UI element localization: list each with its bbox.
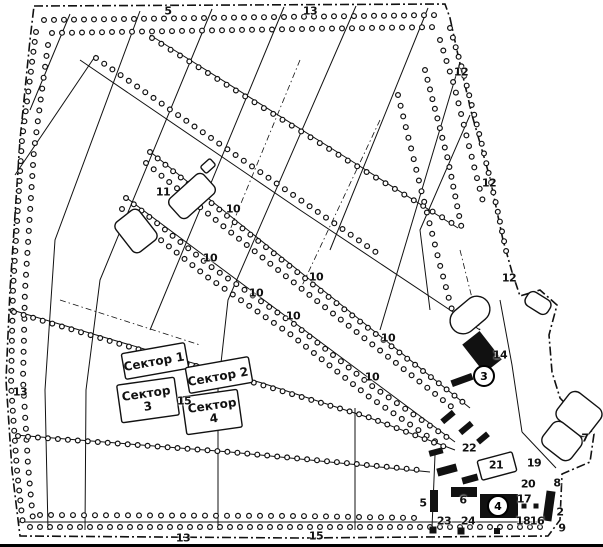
tree-icon [338, 406, 343, 411]
map-number-label-8: 8 [553, 478, 560, 489]
tree-icon [427, 221, 432, 226]
plot-divider [230, 60, 300, 230]
tree-icon [467, 144, 472, 149]
tree-icon [394, 426, 399, 431]
tree-icon [208, 525, 213, 530]
tree-icon [396, 93, 401, 98]
tree-icon [271, 112, 276, 117]
map-number-label-10: 10 [203, 253, 217, 264]
tree-row [50, 25, 435, 36]
tree-icon [401, 515, 406, 520]
tree-icon [260, 27, 265, 32]
tree-icon [30, 59, 35, 64]
tree-icon [34, 30, 39, 35]
tree-icon [438, 264, 443, 269]
tree-icon [364, 463, 369, 468]
tree-icon [22, 338, 27, 343]
tree-icon [66, 437, 71, 442]
tree-icon [419, 189, 424, 194]
tree-icon [30, 514, 35, 519]
tree-icon [217, 141, 222, 146]
map-number-label-10: 10 [365, 372, 379, 383]
tree-icon [12, 310, 17, 315]
tree-icon [430, 231, 435, 236]
tree-icon [31, 49, 36, 54]
tree-icon [158, 525, 163, 530]
tree-icon [346, 365, 351, 370]
map-number-label-12: 12 [454, 67, 468, 78]
tree-icon [117, 341, 122, 346]
tree-icon [383, 181, 388, 186]
tree-icon [160, 29, 165, 34]
tree-icon [453, 194, 458, 199]
tree-icon [94, 56, 99, 61]
tree-icon [374, 175, 379, 180]
tree-icon [343, 376, 348, 381]
tree-icon [163, 162, 168, 167]
map-number-label-17: 17 [517, 494, 531, 505]
tree-icon [206, 211, 211, 216]
tree-icon [194, 252, 199, 257]
tree-icon [307, 334, 312, 339]
tree-icon [444, 387, 449, 392]
tree-icon [452, 393, 457, 398]
tree-icon [130, 29, 135, 34]
tree-icon [192, 124, 197, 129]
tree-icon [280, 389, 285, 394]
tree-icon [229, 230, 234, 235]
tree-icon [433, 392, 438, 397]
tree-icon [234, 282, 239, 287]
tree-icon [383, 405, 388, 410]
tree-icon [230, 28, 235, 33]
tree-icon [375, 400, 380, 405]
tree-icon [278, 525, 283, 530]
tree-icon [313, 514, 318, 519]
tree-icon [319, 400, 324, 405]
tree-icon [28, 207, 33, 212]
tree-icon [362, 14, 367, 19]
tree-icon [338, 317, 343, 322]
tree-icon [26, 434, 31, 439]
tree-icon [120, 30, 125, 35]
tree-icon [203, 513, 208, 518]
tree-icon [181, 513, 186, 518]
tree-icon [264, 245, 269, 250]
map-number-label-12: 12 [482, 178, 496, 189]
map-number-label-18: 18 [516, 516, 530, 527]
tree-icon [30, 174, 35, 179]
tree-icon [469, 154, 474, 159]
tree-icon [38, 97, 43, 102]
tree-icon [453, 45, 458, 50]
tree-icon [444, 285, 449, 290]
tree-icon [410, 25, 415, 30]
tree-icon [331, 353, 336, 358]
tree-icon [128, 525, 133, 530]
tree-icon [386, 354, 391, 359]
tree-icon [346, 323, 351, 328]
tree-icon [25, 459, 30, 464]
tree-icon [444, 435, 449, 440]
tree-icon [315, 210, 320, 215]
tree-icon [285, 455, 290, 460]
tree-icon [209, 136, 214, 141]
tree-icon [115, 513, 120, 518]
tree-icon [317, 141, 322, 146]
tree-icon [225, 513, 230, 518]
tree-icon [38, 525, 43, 530]
tree-icon [239, 298, 244, 303]
tree-row [438, 38, 485, 202]
tree-icon [272, 15, 277, 20]
tree-icon [284, 274, 289, 279]
tree-icon [110, 67, 115, 72]
tree-icon [18, 169, 23, 174]
tree-icon [422, 13, 427, 18]
tree-icon [289, 123, 294, 128]
tree-icon [115, 441, 120, 446]
tree-icon [469, 103, 474, 108]
map-number-label-16: 16 [530, 516, 544, 527]
street [500, 300, 522, 432]
tree-icon [242, 15, 247, 20]
tree-icon [484, 161, 489, 166]
tree-icon [334, 301, 339, 306]
tree-icon [10, 298, 15, 303]
tree-icon [49, 513, 54, 518]
tree-icon [25, 448, 30, 453]
tree-icon [258, 170, 263, 175]
tree-icon [259, 299, 264, 304]
tree-icon [58, 525, 63, 530]
tree-icon [14, 229, 19, 234]
tree-icon [252, 100, 257, 105]
tree-icon [327, 147, 332, 152]
tree-icon [345, 461, 350, 466]
tree-icon [11, 278, 16, 283]
tree-icon [404, 429, 409, 434]
tree-icon [330, 26, 335, 31]
tree-icon [155, 156, 160, 161]
tree-icon [21, 360, 26, 365]
map-number-label-10: 10 [249, 288, 263, 299]
tree-icon [432, 440, 437, 445]
tree-icon [323, 346, 328, 351]
tree-icon [384, 464, 389, 469]
tree-icon [432, 13, 437, 18]
tree-icon [351, 382, 356, 387]
tree-icon [69, 327, 74, 332]
tree-icon [72, 17, 77, 22]
tree-icon [245, 451, 250, 456]
tree-icon [360, 26, 365, 31]
building-5-black [430, 490, 438, 512]
tree-icon [163, 227, 168, 232]
tree-icon [28, 525, 33, 530]
tree-icon [27, 79, 32, 84]
tree-icon [143, 90, 148, 95]
tree-icon [225, 147, 230, 152]
tree-icon [332, 221, 337, 226]
tree-icon [124, 196, 129, 201]
tree-icon [394, 465, 399, 470]
tree-icon [190, 263, 195, 268]
tree-icon [32, 40, 37, 45]
tree-icon [357, 412, 362, 417]
tree-icon [167, 244, 172, 249]
tree-icon [433, 242, 438, 247]
tree-icon [376, 419, 381, 424]
tree-icon [241, 158, 246, 163]
tree-icon [95, 440, 100, 445]
tree-icon [172, 16, 177, 21]
tree-icon [217, 207, 222, 212]
tree-icon [240, 28, 245, 33]
tree-icon [318, 288, 323, 293]
tree-icon [404, 466, 409, 471]
map-number-label-24: 24 [461, 516, 475, 527]
tree-icon [159, 513, 164, 518]
tree-icon [192, 513, 197, 518]
tree-icon [288, 525, 293, 530]
tree-icon [31, 315, 36, 320]
tree-icon [350, 26, 355, 31]
tree-icon [35, 119, 40, 124]
tree-icon [280, 27, 285, 32]
tree-icon [120, 207, 125, 212]
tree-icon [167, 180, 172, 185]
tree-icon [206, 71, 211, 76]
tree-icon [92, 17, 97, 22]
tree-icon [493, 200, 498, 205]
tree-icon [17, 189, 22, 194]
tree-icon [394, 361, 399, 366]
tree-icon [232, 220, 237, 225]
tree-icon [88, 333, 93, 338]
tree-icon [408, 525, 413, 530]
tree-icon [46, 43, 51, 48]
tree-icon [390, 515, 395, 520]
tree-icon [417, 178, 422, 183]
tree-icon [340, 26, 345, 31]
tree-icon [362, 336, 367, 341]
tree-icon [22, 327, 27, 332]
tree-icon [19, 508, 24, 513]
tree-icon [190, 28, 195, 33]
tree-icon [24, 261, 29, 266]
tree-icon [456, 101, 461, 106]
tree-icon [449, 174, 454, 179]
tree-icon [142, 16, 147, 21]
tree-icon [299, 286, 304, 291]
tree-icon [315, 299, 320, 304]
building-2-black [542, 491, 555, 522]
tree-icon [178, 53, 183, 58]
tree-icon [477, 132, 482, 137]
tree-icon [247, 304, 252, 309]
building-hatch [428, 447, 443, 456]
tree-icon [266, 175, 271, 180]
tree-icon [180, 29, 185, 34]
tree-icon [299, 129, 304, 134]
tree-icon [322, 14, 327, 19]
tree-icon [12, 269, 17, 274]
tree-icon [288, 332, 293, 337]
tree-icon [310, 26, 315, 31]
map-number-label-14: 14 [493, 350, 507, 361]
tree-icon [188, 525, 193, 530]
tree-icon [472, 112, 477, 117]
tree-icon [326, 295, 331, 300]
tree-icon [27, 218, 32, 223]
tree-icon [41, 75, 46, 80]
tree-icon [430, 97, 435, 102]
tree-icon [268, 261, 273, 266]
tree-icon [174, 250, 179, 255]
tree-icon [170, 29, 175, 34]
tree-icon [464, 83, 469, 88]
tree-icon [448, 404, 453, 409]
tree-icon [148, 525, 153, 530]
tree-icon [456, 54, 461, 59]
tree-icon [145, 443, 150, 448]
tree-icon [126, 513, 131, 518]
tree-icon [449, 221, 454, 226]
building-hatch [461, 474, 478, 485]
tree-icon [185, 446, 190, 451]
tree-icon [200, 28, 205, 33]
building-hatch [476, 432, 490, 445]
tree-icon [118, 73, 123, 78]
tree-icon [464, 133, 469, 138]
tree-icon [309, 398, 314, 403]
tree-icon [312, 351, 317, 356]
tree-icon [495, 209, 500, 214]
tree-icon [271, 251, 276, 256]
tree-icon [403, 406, 408, 411]
tree-icon [425, 77, 430, 82]
tree-icon [44, 54, 49, 59]
tree-icon [475, 176, 480, 181]
gate-post [494, 528, 500, 534]
tree-icon [291, 280, 296, 285]
tree-icon [138, 525, 143, 530]
tree-icon [279, 257, 284, 262]
tree-icon [50, 31, 55, 36]
tree-icon [252, 249, 257, 254]
tree-icon [218, 525, 223, 530]
tree-icon [90, 30, 95, 35]
map-number-label-10: 10 [226, 204, 240, 215]
tree-icon [411, 157, 416, 162]
tree-icon [159, 41, 164, 46]
tree-icon [236, 513, 241, 518]
tree-icon [391, 411, 396, 416]
tree-icon [102, 61, 107, 66]
tree-icon [140, 29, 145, 34]
tree-icon [303, 276, 308, 281]
tree-icon [215, 449, 220, 454]
tree-icon [444, 59, 449, 64]
building-hatch [440, 410, 455, 424]
tree-icon [345, 158, 350, 163]
tree-icon [421, 369, 426, 374]
tree-icon [430, 209, 435, 214]
tree-icon [412, 13, 417, 18]
tree-icon [265, 453, 270, 458]
tree-icon [336, 152, 341, 157]
structure-outline [112, 207, 159, 255]
tree-icon [403, 125, 408, 130]
tree-icon [296, 338, 301, 343]
tree-icon [428, 87, 433, 92]
tree-icon [105, 440, 110, 445]
tree-icon [418, 525, 423, 530]
tree-row [42, 13, 437, 23]
tree-icon [382, 13, 387, 18]
tree-icon [262, 15, 267, 20]
point-marker [534, 504, 539, 509]
plot-divider [60, 300, 200, 345]
tree-icon [26, 240, 31, 245]
tree-icon [414, 167, 419, 172]
tree-icon [104, 513, 109, 518]
tree-icon [176, 113, 181, 118]
tree-icon [442, 145, 447, 150]
tree-icon [182, 257, 187, 262]
tree-icon [250, 164, 255, 169]
tree-icon [291, 514, 296, 519]
tree-icon [295, 270, 300, 275]
tree-icon [348, 232, 353, 237]
tree-icon [402, 13, 407, 18]
map-number-label-2: 2 [556, 507, 563, 518]
tree-icon [335, 369, 340, 374]
tree-icon [374, 464, 379, 469]
tree-icon [413, 362, 418, 367]
tree-icon [222, 286, 227, 291]
tree-icon [486, 171, 491, 176]
tree-icon [315, 458, 320, 463]
tree-icon [479, 141, 484, 146]
map-number-label-13: 13 [176, 533, 190, 544]
tree-icon [283, 187, 288, 192]
tree-icon [282, 15, 287, 20]
map-number-label-13: 13 [13, 387, 27, 398]
tree-icon [339, 359, 344, 364]
tree-icon [290, 27, 295, 32]
tree-icon [398, 525, 403, 530]
tree-icon [186, 246, 191, 251]
tree-icon [270, 27, 275, 32]
tree-icon [449, 306, 454, 311]
entrance-green-oval [445, 291, 495, 339]
map-number-label-6: 6 [459, 495, 466, 506]
tree-icon [56, 437, 61, 442]
tree-icon [62, 17, 67, 22]
scanned-map-page: 5131212121110101010101010141315222119720… [0, 0, 603, 547]
tree-icon [159, 101, 164, 106]
tree-icon [68, 525, 73, 530]
tree-icon [448, 26, 453, 31]
tree-icon [33, 141, 38, 146]
tree-icon [358, 388, 363, 393]
tree-icon [393, 187, 398, 192]
tree-icon [10, 328, 15, 333]
tree-icon [268, 525, 273, 530]
map-number-label-12: 12 [502, 273, 516, 284]
